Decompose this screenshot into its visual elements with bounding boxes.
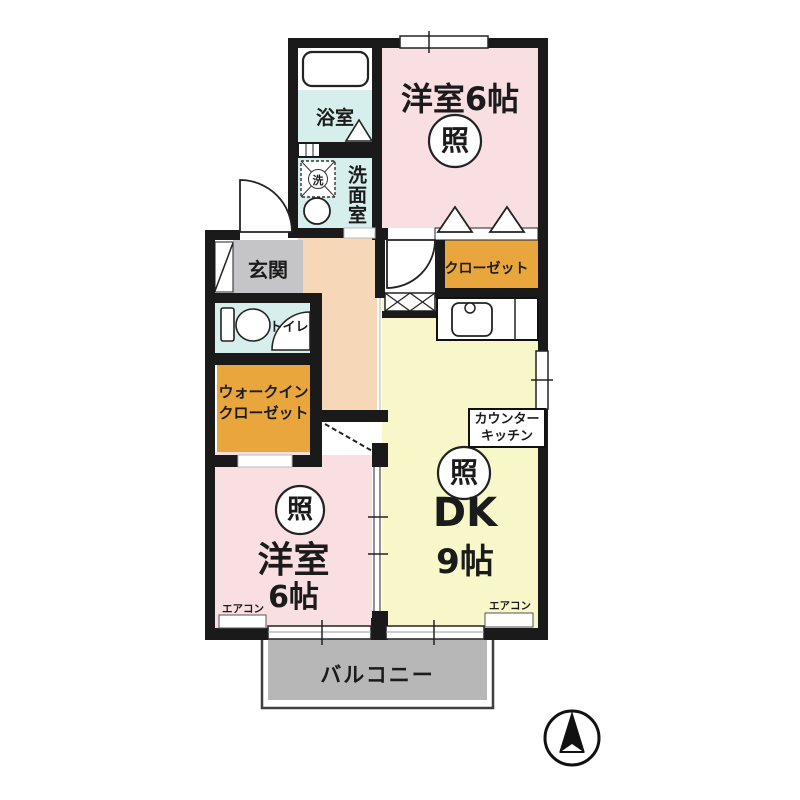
aircon-left-label: エアコン — [216, 601, 270, 616]
closet-label: クローゼット — [437, 258, 536, 278]
toilet-bowl — [236, 309, 270, 341]
window-top — [400, 36, 488, 48]
aircon-left-box — [219, 615, 266, 628]
bath-label: 浴室 — [298, 103, 372, 130]
aircon-right-box — [485, 613, 533, 627]
counter-kitchen-line1: カウンター — [470, 411, 544, 428]
toilet-tank — [221, 308, 234, 341]
bathtub — [303, 52, 368, 86]
entrance-label: 玄関 — [233, 254, 303, 283]
washroom-label: 洗面室 — [340, 160, 370, 230]
balcony-label: バルコニー — [262, 659, 493, 689]
bedroom-top-light-symbol: 照 — [429, 116, 481, 166]
storage-hatch-box — [385, 293, 435, 311]
washstand-bowl — [304, 198, 330, 224]
kitchen-faucet — [465, 303, 475, 313]
counter-kitchen-line2: キッチン — [470, 428, 544, 445]
bath-window-icon — [299, 144, 319, 156]
washer-mark: 洗 — [310, 172, 326, 188]
bedroom-bottom-light-symbol: 照 — [276, 487, 324, 533]
dk-size-label: 9帖 — [410, 534, 520, 583]
walkin-closet-label-line1: ウォークイン — [217, 382, 310, 403]
entrance-door-swing — [240, 180, 292, 232]
floorplan-page: 洋室6帖 照 浴室 洗面室 洗 玄関 トイレ クローゼット ウォークイン クロー… — [0, 0, 800, 800]
dk-label: DK — [410, 490, 520, 536]
walkin-closet-opening — [238, 455, 292, 467]
walkin-closet-label-line2: クローゼット — [217, 403, 310, 424]
toilet-label: トイレ — [266, 316, 312, 335]
compass-north-icon — [545, 711, 599, 765]
aircon-right-label: エアコン — [483, 598, 537, 613]
bedroom-top-label: 洋室6帖 — [382, 74, 538, 120]
counter-kitchen-box: カウンター キッチン — [468, 408, 546, 448]
